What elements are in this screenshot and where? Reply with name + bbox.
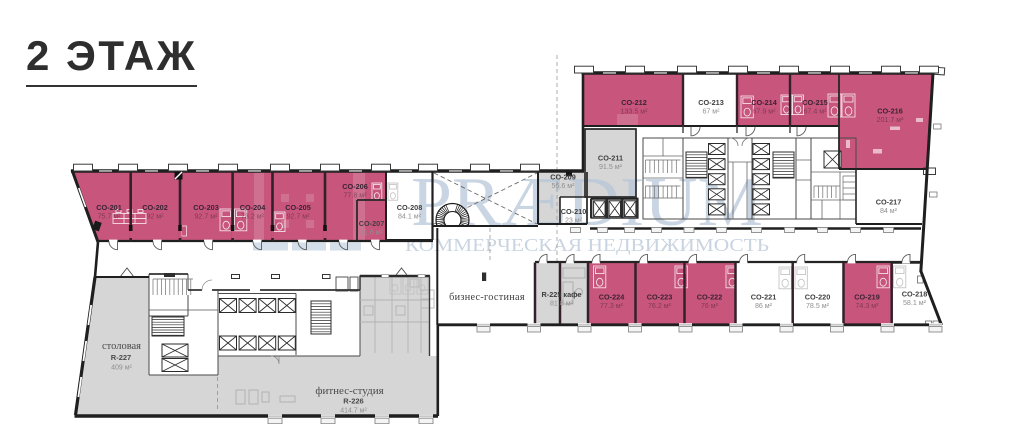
svg-text:86 м²: 86 м²: [755, 302, 773, 310]
svg-text:58.1 м²: 58.1 м²: [903, 299, 927, 307]
svg-text:столовая: столовая: [102, 341, 141, 352]
svg-text:CO-214: CO-214: [751, 98, 777, 107]
svg-text:414.7 м²: 414.7 м²: [340, 408, 367, 415]
svg-text:31.6 м²: 31.6 м²: [360, 229, 384, 237]
svg-text:R-226: R-226: [343, 397, 363, 406]
svg-text:92.7 м²: 92.7 м²: [194, 213, 218, 221]
svg-text:67.4 м²: 67.4 м²: [803, 108, 827, 116]
svg-text:CO-205: CO-205: [285, 203, 311, 212]
svg-text:67.9 м²: 67.9 м²: [752, 108, 776, 116]
svg-text:CO-219: CO-219: [854, 293, 880, 302]
svg-text:CO-209: CO-209: [550, 173, 576, 182]
svg-text:73.2 м²: 73.2 м²: [241, 213, 265, 221]
svg-text:201.7 м²: 201.7 м²: [877, 116, 905, 124]
svg-text:23 м²: 23 м²: [565, 217, 583, 225]
svg-text:CO-211: CO-211: [598, 154, 623, 163]
svg-text:91.5 м²: 91.5 м²: [599, 163, 623, 171]
svg-text:бизнес-гостиная: бизнес-гостиная: [449, 292, 525, 303]
svg-text:92.7 м²: 92.7 м²: [286, 213, 310, 221]
svg-text:CO-206: CO-206: [342, 182, 368, 191]
svg-text:CO-207: CO-207: [359, 219, 385, 228]
svg-text:КОММЕРЧЕСКАЯ НЕДВИЖИМОСТЬ: КОММЕРЧЕСКАЯ НЕДВИЖИМОСТЬ: [405, 235, 769, 255]
svg-text:78.5 м²: 78.5 м²: [806, 302, 830, 310]
svg-text:CO-222: CO-222: [697, 293, 723, 302]
svg-text:CO-216: CO-216: [877, 107, 903, 116]
svg-text:CO-224: CO-224: [599, 293, 625, 302]
svg-text:CO-212: CO-212: [621, 98, 647, 107]
svg-text:409 м²: 409 м²: [111, 365, 132, 372]
svg-text:CO-213: CO-213: [698, 98, 724, 107]
svg-text:CO-217: CO-217: [876, 198, 902, 207]
svg-text:56.6 м²: 56.6 м²: [551, 182, 575, 190]
svg-text:74.3 м²: 74.3 м²: [855, 302, 879, 310]
svg-text:92 м²: 92 м²: [146, 213, 164, 221]
svg-text:CO-208: CO-208: [397, 203, 423, 212]
svg-text:76 м²: 76 м²: [701, 302, 719, 310]
svg-text:R-227: R-227: [111, 353, 131, 362]
svg-text:фитнес-студия: фитнес-студия: [315, 385, 383, 397]
svg-text:CO-204: CO-204: [240, 203, 266, 212]
svg-text:CO-221: CO-221: [751, 293, 777, 302]
svg-text:75.7 м²: 75.7 м²: [97, 213, 121, 221]
svg-text:CO-223: CO-223: [647, 293, 673, 302]
svg-text:CO-201: CO-201: [96, 203, 122, 212]
svg-text:77.8 м²: 77.8 м²: [343, 192, 367, 200]
svg-text:67 м²: 67 м²: [702, 108, 720, 116]
svg-text:CO-215: CO-215: [802, 98, 828, 107]
svg-text:CO-202: CO-202: [142, 203, 168, 212]
svg-text:77.3 м²: 77.3 м²: [600, 302, 624, 310]
svg-text:81.8 м²: 81.8 м²: [550, 300, 574, 308]
svg-text:CO-203: CO-203: [193, 203, 219, 212]
svg-text:133.5 м²: 133.5 м²: [621, 108, 649, 116]
svg-text:76.2 м²: 76.2 м²: [648, 302, 672, 310]
svg-text:CO-220: CO-220: [805, 293, 831, 302]
svg-text:R-225 кафе: R-225 кафе: [542, 290, 582, 299]
svg-text:CO-218: CO-218: [902, 290, 928, 299]
svg-text:84 м²: 84 м²: [880, 207, 898, 215]
svg-text:CO-210: CO-210: [561, 207, 587, 216]
svg-text:84.1 м²: 84.1 м²: [398, 213, 422, 221]
